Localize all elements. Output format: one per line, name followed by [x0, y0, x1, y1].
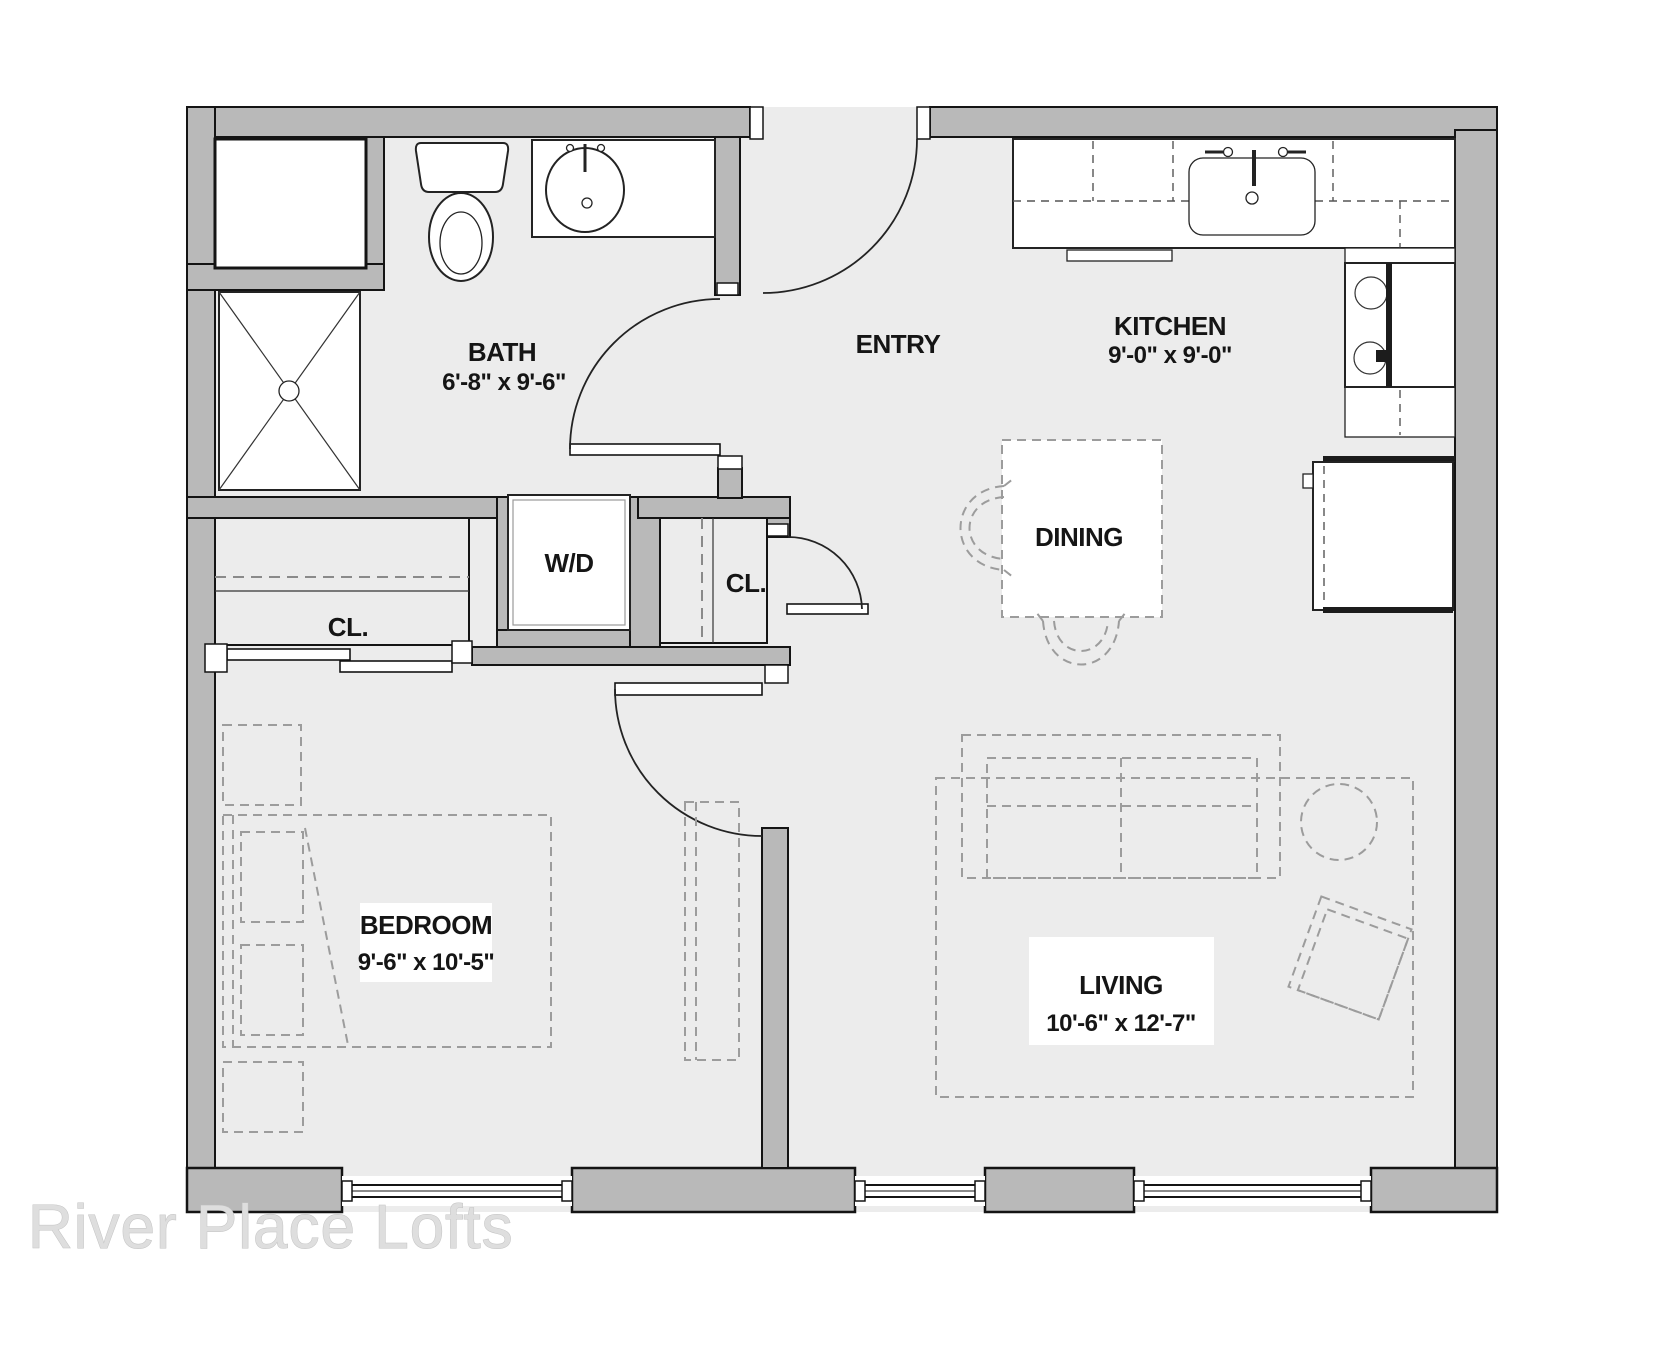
wall-bathdoor-jamb — [718, 468, 742, 498]
shower — [219, 292, 360, 490]
dining-label: DINING — [1035, 522, 1123, 552]
wall-bottom-3 — [985, 1168, 1134, 1212]
dishwasher — [1067, 250, 1172, 261]
property-watermark: River Place Lofts — [28, 1193, 514, 1262]
refrigerator — [1303, 456, 1455, 613]
wall-wd-right — [630, 497, 660, 647]
stove — [1345, 263, 1455, 387]
bath-label: BATH — [468, 337, 536, 367]
bedroom-label: BEDROOM — [360, 910, 492, 940]
jamb-bedroom-door — [765, 665, 788, 683]
kitchen-dims: 9'-0" x 9'-0" — [1108, 342, 1232, 369]
wall-bottom-2 — [572, 1168, 855, 1212]
wall-bath-entry — [715, 137, 740, 295]
entry-label: ENTRY — [856, 329, 941, 359]
wall-closet2-top — [638, 497, 790, 518]
wall-bedroom-living — [762, 828, 788, 1168]
jamb-bathdoor — [718, 456, 742, 469]
living-label: LIVING — [1079, 970, 1163, 1000]
living-dims: 10'-6" x 12'-7" — [1046, 1010, 1195, 1037]
kitchen-sink — [1189, 148, 1315, 236]
wd-label: W/D — [544, 548, 593, 578]
bathroom-vanity — [532, 140, 715, 237]
jamb-bath-top — [717, 283, 738, 295]
floor-plan: BATH 6'-8" x 9'-6" ENTRY KITCHEN 9'-0" x… — [0, 0, 1680, 1352]
refrigerator-handle — [1303, 474, 1313, 488]
bath-dims: 6'-8" x 9'-6" — [442, 369, 566, 396]
wall-bath-south — [187, 497, 508, 518]
wall-bottom-4 — [1371, 1168, 1497, 1212]
window-living-2 — [1134, 1176, 1371, 1206]
kitchen-label: KITCHEN — [1114, 311, 1226, 341]
wall-top-right — [930, 107, 1497, 137]
closet1-label: CL. — [328, 612, 368, 642]
wall-bedroom-north — [472, 647, 790, 665]
floor-plan-page: BATH 6'-8" x 9'-6" ENTRY KITCHEN 9'-0" x… — [0, 0, 1680, 1352]
wall-wd-bottom — [497, 630, 638, 647]
wall-right — [1455, 130, 1497, 1212]
closet2-label: CL. — [726, 568, 766, 598]
bedroom-dims: 9'-6" x 10'-5" — [358, 949, 495, 976]
mechanical-chase — [215, 139, 366, 268]
wall-wd-left — [497, 497, 508, 647]
wall-top-left — [187, 107, 750, 137]
jamb-closet2 — [766, 524, 788, 536]
window-living-1 — [855, 1176, 985, 1206]
